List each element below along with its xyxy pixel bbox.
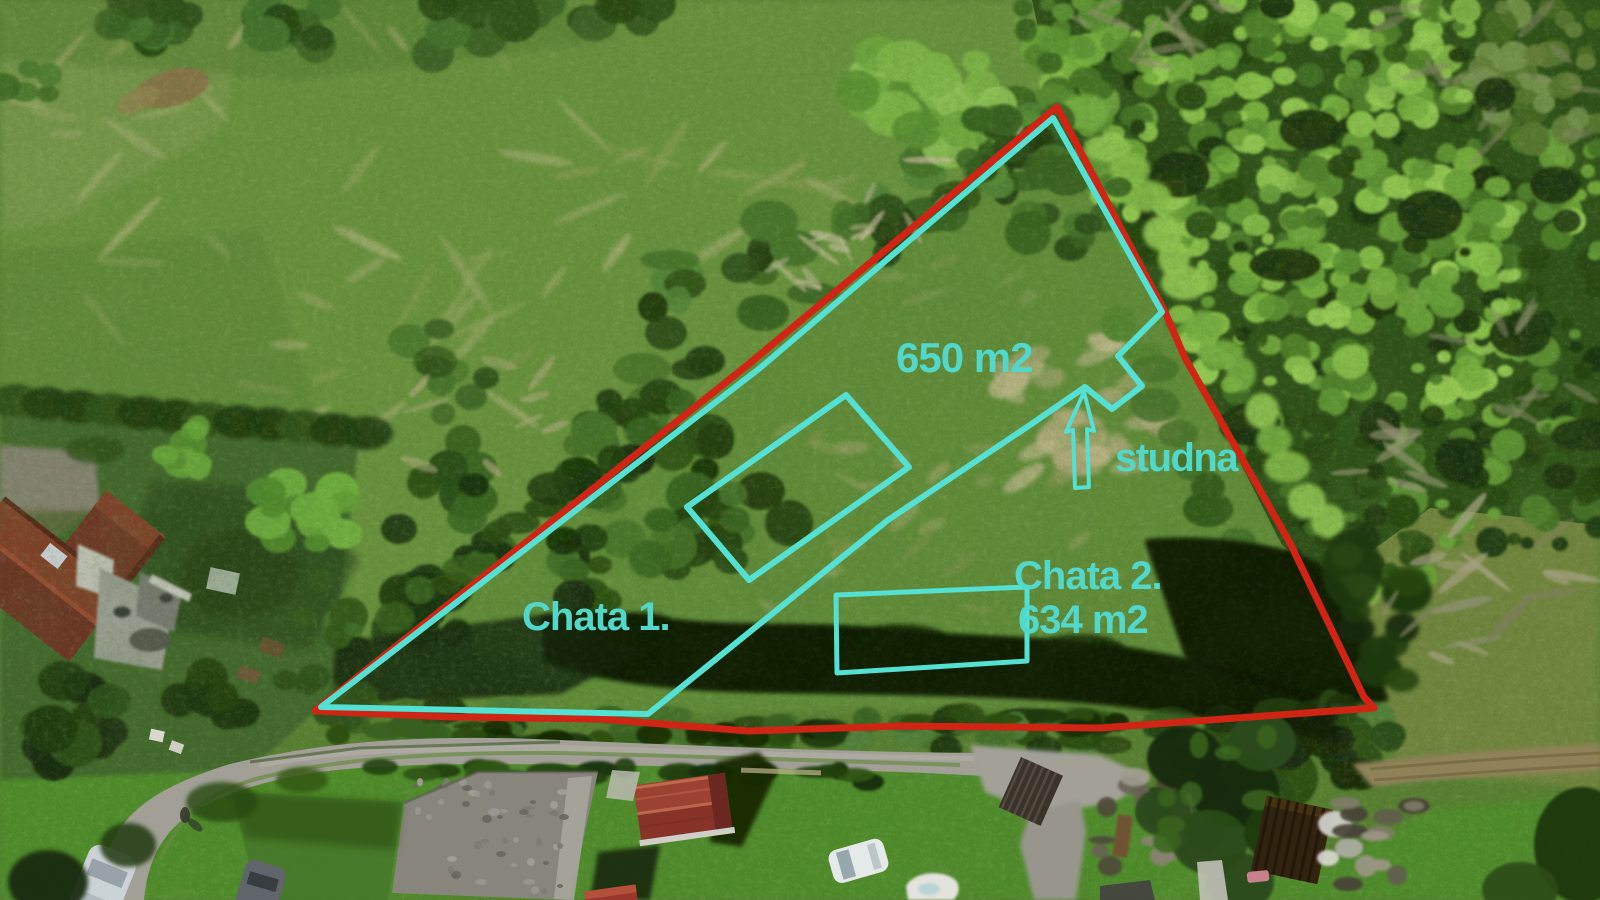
svg-text:634 m2: 634 m2	[1018, 598, 1148, 642]
svg-text:studna: studna	[1115, 436, 1239, 480]
svg-text:650 m2: 650 m2	[896, 334, 1032, 381]
svg-text:Chata 1.: Chata 1.	[522, 595, 670, 639]
svg-text:Chata 2.: Chata 2.	[1014, 554, 1162, 598]
